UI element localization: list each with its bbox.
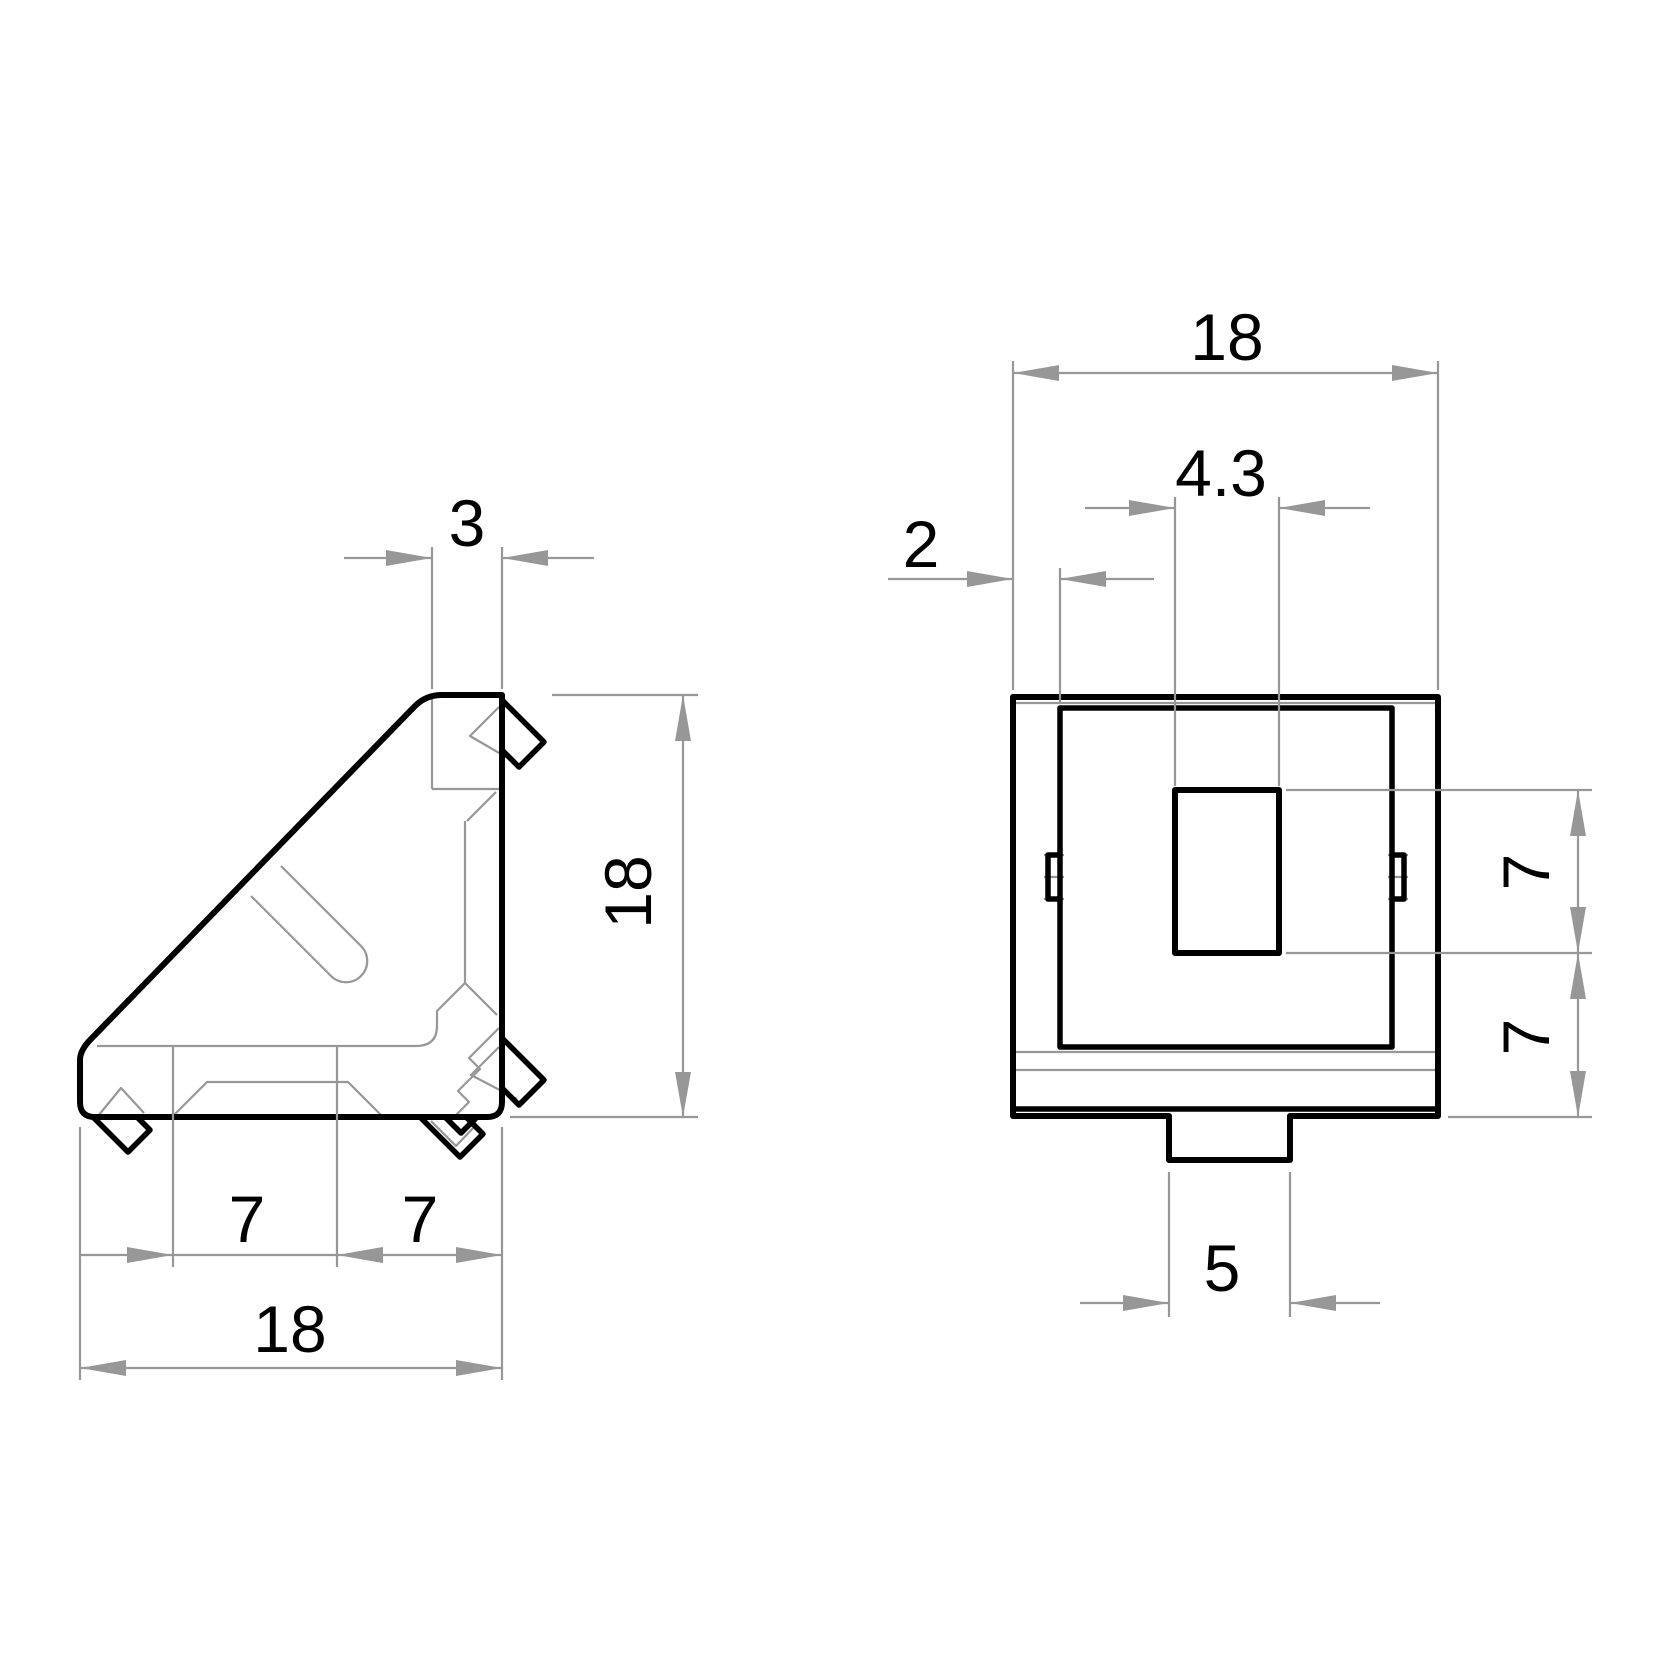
front-outline-with-tab (1013, 697, 1438, 1160)
front-view-outline-group (1013, 697, 1438, 1160)
arrowhead (1290, 1295, 1336, 1311)
arrowhead (1060, 571, 1106, 587)
arrowhead (967, 571, 1013, 587)
arrowhead (1570, 790, 1586, 836)
arrowhead (456, 1360, 502, 1376)
inner-step-notch (467, 792, 496, 821)
dim-front-tab: 5 (1080, 1172, 1380, 1317)
arrowhead (675, 1072, 691, 1117)
inner-pocket-square (1060, 708, 1392, 1047)
dim-label-7-slot: 7 (1489, 854, 1563, 891)
hook-top-right (502, 700, 544, 767)
front-view: 18 4.3 2 (888, 300, 1592, 1317)
hook-right-lower (502, 1038, 544, 1105)
side-profile-outline (80, 695, 502, 1117)
bottom-groove (174, 1082, 382, 1116)
arrowhead (502, 550, 548, 566)
arrowhead (1123, 1295, 1169, 1311)
arrowhead (1570, 953, 1586, 999)
arrowhead (127, 1247, 173, 1263)
arrowhead (80, 1360, 126, 1376)
dim-label-2: 2 (903, 507, 940, 581)
dim-label-18-front: 18 (1190, 300, 1263, 374)
side-view-interior-lines (97, 698, 518, 1146)
arrowhead (1129, 500, 1175, 516)
side-view-outline-group (80, 695, 544, 1157)
bracket-technical-drawing: 3 18 (0, 0, 1667, 1667)
dim-front-wall: 2 (888, 507, 1154, 704)
center-slot (1175, 790, 1279, 953)
serration-zigzag (455, 1028, 499, 1116)
arrowhead (1279, 500, 1325, 516)
dim-label-5: 5 (1204, 1231, 1241, 1305)
arrowhead (456, 1247, 502, 1263)
hook-chevron-bottom-left (98, 1088, 144, 1116)
hook-chevron-right (471, 1047, 517, 1099)
dim-label-7-left: 7 (229, 1182, 266, 1256)
side-view: 3 18 (80, 486, 698, 1380)
drawing-sheet: 3 18 (0, 0, 1667, 1667)
dim-label-7-right: 7 (402, 1182, 439, 1256)
pocket-outline (97, 983, 465, 1046)
dim-label-18: 18 (591, 855, 665, 928)
arrowhead (1392, 365, 1438, 381)
dim-side-top-wall: 3 (344, 486, 594, 689)
channel-diagonal-right (465, 983, 497, 1015)
hook-bottom-left (94, 1117, 150, 1152)
dim-front-slot-width: 4.3 (1085, 436, 1370, 786)
arrowhead (1570, 907, 1586, 953)
arrowhead (386, 550, 432, 566)
arrowhead (675, 695, 691, 741)
dim-label-4-3: 4.3 (1175, 436, 1267, 510)
dim-side-height: 18 (510, 695, 698, 1117)
dim-label-18-width: 18 (253, 1292, 326, 1366)
dim-side-width: 18 (80, 1292, 502, 1376)
arrowhead (1013, 365, 1059, 381)
arrowhead (337, 1247, 383, 1263)
front-view-interior-lines (1013, 703, 1438, 1070)
dim-label-3: 3 (449, 486, 486, 560)
arrowhead (1570, 1071, 1586, 1117)
dim-label-7-bottom: 7 (1489, 1019, 1563, 1056)
angled-slot (251, 866, 367, 982)
